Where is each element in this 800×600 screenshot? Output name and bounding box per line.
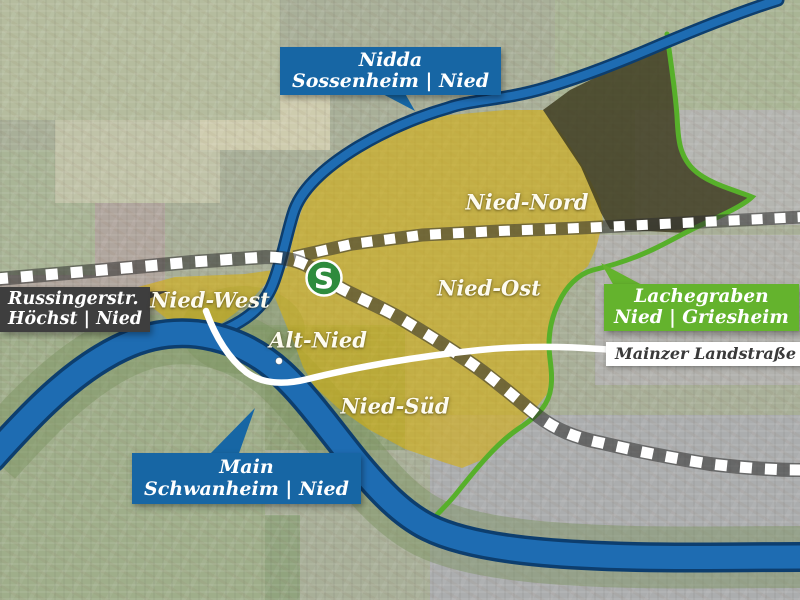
- district-label-nied-sued: Nied-Süd: [340, 394, 449, 419]
- callout-lachegraben: Lachegraben Nied | Griesheim: [604, 284, 799, 331]
- callout-mainzer-landstrasse: Mainzer Landstraße: [606, 342, 800, 366]
- callout-lachegraben-subtitle: Nied | Griesheim: [614, 308, 789, 329]
- district-label-nied-west: Nied-West: [150, 288, 270, 313]
- callout-russingerstrasse: Russingerstr. Höchst | Nied: [0, 287, 150, 332]
- callout-nidda-subtitle: Sossenheim | Nied: [292, 71, 489, 92]
- district-label-nied-nord: Nied-Nord: [466, 190, 589, 215]
- mainzer-landstrasse-label: Mainzer Landstraße: [615, 344, 796, 363]
- district-label-alt-nied: Alt-Nied: [269, 328, 367, 353]
- nied-district-map: S Nidda Sossenheim | Nied Russingerstr. …: [0, 0, 800, 600]
- callout-main-river-title: Main: [144, 457, 349, 479]
- callout-nidda-title: Nidda: [292, 50, 489, 71]
- callout-main-river: Main Schwanheim | Nied: [132, 453, 361, 504]
- callout-russingerstrasse-subtitle: Höchst | Nied: [8, 310, 142, 330]
- callout-pointer-lachegraben: [601, 263, 644, 286]
- callout-pointer-main: [208, 408, 255, 456]
- district-label-nied-ost: Nied-Ost: [437, 276, 541, 301]
- callout-lachegraben-title: Lachegraben: [614, 287, 789, 308]
- callout-main-river-subtitle: Schwanheim | Nied: [144, 479, 349, 501]
- callout-russingerstrasse-title: Russingerstr.: [8, 290, 142, 310]
- callout-nidda: Nidda Sossenheim | Nied: [280, 47, 501, 95]
- sbahn-letter: S: [314, 262, 334, 295]
- alt-nied-marker-dot: [276, 358, 283, 365]
- sbahn-station-icon: S: [307, 261, 342, 296]
